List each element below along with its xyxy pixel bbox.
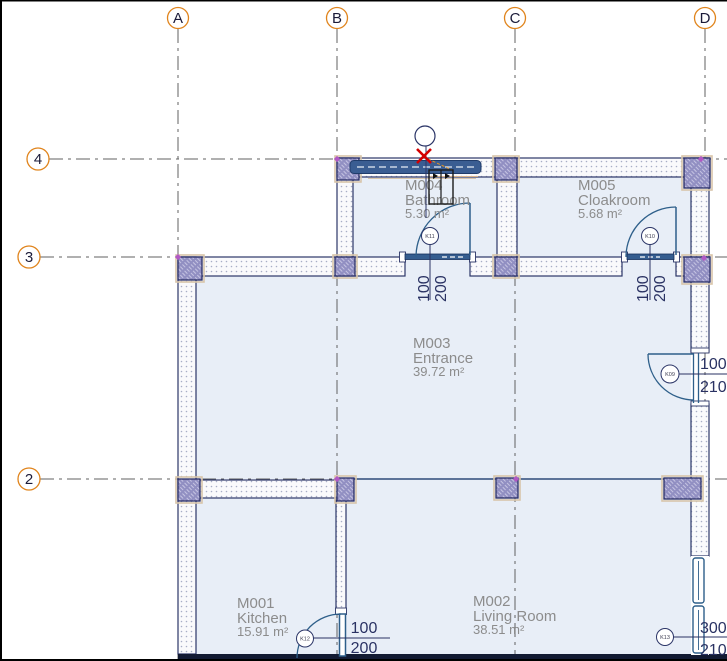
svg-text:5.30 m²: 5.30 m²	[405, 206, 450, 221]
svg-text:K09: K09	[665, 372, 675, 378]
wall-west-exterior[interactable]	[178, 257, 196, 654]
grid-bubble-4[interactable]: 4	[27, 148, 49, 170]
grid-bubble-3[interactable]: 3	[18, 246, 40, 268]
svg-text:K11: K11	[425, 234, 434, 240]
svg-text:5.68 m²: 5.68 m²	[578, 206, 623, 221]
wall-kitchen-north[interactable]	[178, 480, 351, 498]
column-a3[interactable]	[178, 257, 202, 280]
svg-text:C: C	[510, 10, 521, 27]
dimension-k13-height[interactable]: 210	[700, 642, 727, 659]
dimension-k11-width[interactable]: 100	[416, 275, 433, 302]
column-b2[interactable]	[337, 478, 354, 501]
door-tag-k12[interactable]: K12	[297, 630, 314, 647]
svg-text:K13: K13	[660, 635, 670, 641]
drawing-canvas[interactable]: K11 100 200 K10 100 200 K09 100 210 K12 …	[0, 0, 727, 661]
svg-text:K10: K10	[645, 234, 655, 240]
column-a2[interactable]	[178, 479, 200, 501]
column-c3[interactable]	[495, 257, 517, 276]
svg-text:4: 4	[34, 151, 42, 168]
window-tag-k13[interactable]: K13	[657, 629, 674, 646]
dimension-k13-width[interactable]: 300	[700, 620, 727, 637]
svg-text:K12: K12	[300, 637, 310, 643]
door-tag-k10[interactable]: K10	[642, 228, 659, 245]
dimension-k10-height[interactable]: 200	[652, 275, 669, 302]
tag-placement-icon	[415, 126, 435, 146]
column-d3[interactable]	[684, 257, 710, 282]
dimension-k09-width[interactable]: 100	[700, 356, 727, 373]
dimension-k12-width[interactable]: 100	[351, 620, 378, 637]
wall-row3-west[interactable]	[178, 257, 405, 276]
column-c4[interactable]	[495, 158, 517, 180]
column-b3[interactable]	[335, 257, 355, 276]
svg-text:A: A	[173, 10, 183, 27]
grid-bubble-a[interactable]: A	[168, 8, 189, 29]
svg-text:38.51 m²: 38.51 m²	[473, 622, 525, 637]
dimension-k09-height[interactable]: 210	[700, 379, 727, 396]
grid-bubble-c[interactable]: C	[505, 8, 526, 29]
dimension-k10-width[interactable]: 100	[635, 275, 652, 302]
grid-bubble-2[interactable]: 2	[18, 468, 40, 490]
grid-bubble-b[interactable]: B	[327, 8, 348, 29]
door-tag-k11[interactable]: K11	[422, 228, 439, 245]
column-d2[interactable]	[664, 478, 701, 499]
window-living-room[interactable]	[691, 556, 709, 655]
dimension-k12-height[interactable]: 200	[351, 640, 378, 657]
door-tag-k09[interactable]: K09	[661, 365, 679, 383]
svg-text:D: D	[700, 10, 711, 27]
svg-text:3: 3	[25, 249, 33, 266]
column-d4[interactable]	[684, 158, 710, 188]
dimension-k11-height[interactable]: 200	[433, 275, 450, 302]
svg-text:39.72 m²: 39.72 m²	[413, 364, 465, 379]
svg-text:15.91 m²: 15.91 m²	[237, 624, 289, 639]
wall-kitchen-living[interactable]	[336, 500, 346, 614]
svg-text:B: B	[332, 10, 342, 27]
column-c2[interactable]	[496, 478, 518, 498]
svg-text:2: 2	[25, 471, 33, 488]
grid-bubble-d[interactable]: D	[695, 8, 716, 29]
